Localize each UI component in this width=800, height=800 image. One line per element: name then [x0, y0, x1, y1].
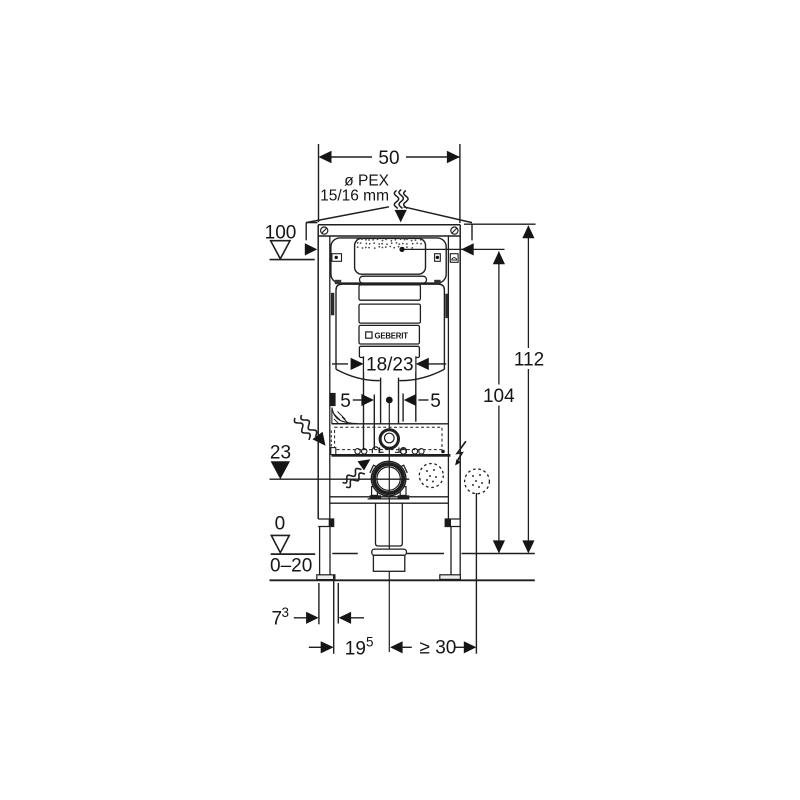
svg-text:15/16 mm: 15/16 mm — [320, 188, 389, 205]
svg-text:5: 5 — [366, 635, 374, 650]
svg-text:5: 5 — [430, 391, 441, 412]
svg-text:104: 104 — [483, 386, 515, 407]
svg-text:7: 7 — [272, 609, 283, 630]
svg-text:18/23: 18/23 — [366, 355, 414, 376]
svg-text:0–20: 0–20 — [270, 556, 312, 577]
svg-text:50: 50 — [378, 148, 399, 169]
svg-text:23: 23 — [270, 442, 291, 463]
svg-text:112: 112 — [514, 350, 544, 371]
svg-text:3: 3 — [282, 605, 290, 620]
svg-text:19: 19 — [345, 638, 366, 659]
svg-text:≥ 30: ≥ 30 — [420, 638, 457, 659]
svg-text:5: 5 — [340, 391, 351, 412]
svg-text:0: 0 — [275, 514, 286, 535]
svg-text:GEBERIT: GEBERIT — [375, 331, 409, 340]
